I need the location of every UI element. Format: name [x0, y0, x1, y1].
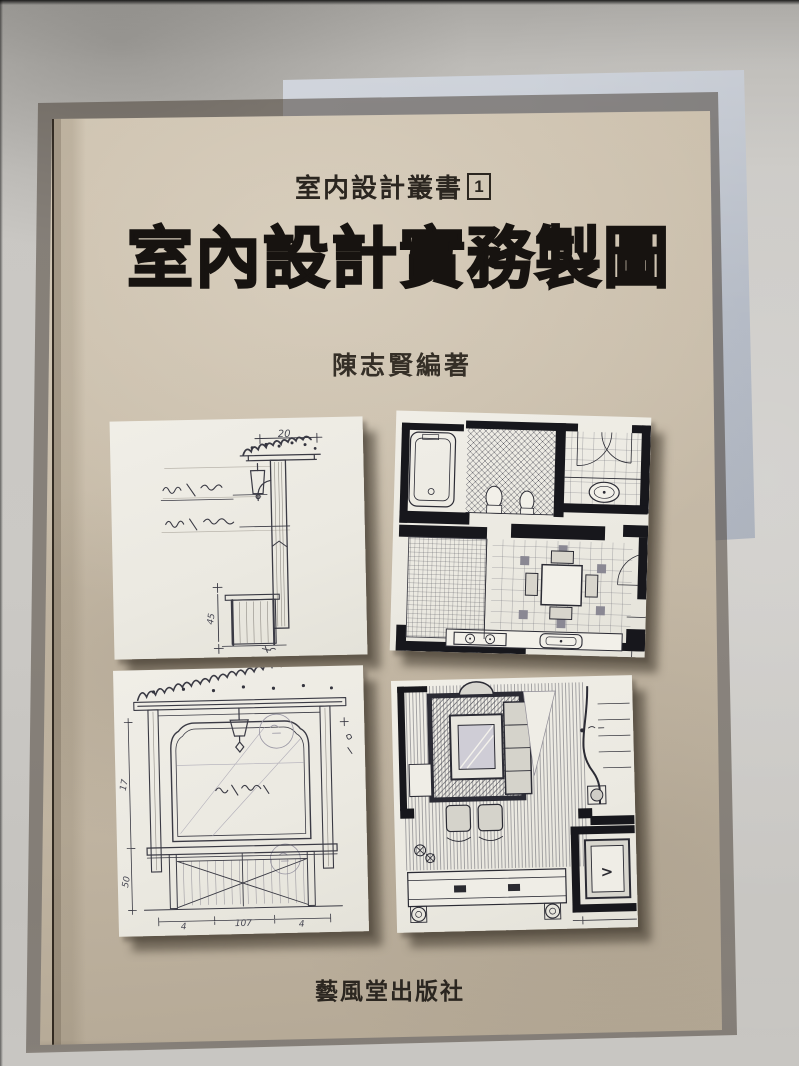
sketch-panel-floor-plan-living: >	[391, 675, 638, 933]
photo-top-edge	[0, 0, 799, 5]
dimension-right-scribble	[340, 717, 352, 753]
washroom	[564, 431, 642, 505]
toilet-area	[466, 428, 556, 514]
accent-tiles	[518, 544, 606, 629]
series-number-box: 1	[467, 173, 491, 200]
detail-callouts	[259, 714, 301, 875]
dimension-left: 45	[205, 583, 223, 653]
top-chair	[459, 681, 493, 695]
sketch-panel-elevation-alcove: 17 50 4 107 4	[113, 665, 369, 937]
pendant-lamp	[230, 708, 249, 752]
svg-text:20: 20	[278, 429, 291, 440]
annotation-post	[166, 517, 290, 531]
sofa	[503, 691, 557, 794]
dining-chairs	[525, 550, 599, 620]
plan-misc-lines	[484, 539, 648, 657]
kitchen-counter	[446, 629, 622, 651]
dining-room	[490, 539, 638, 633]
svg-text:45: 45	[206, 612, 218, 625]
foliage-top	[137, 665, 333, 700]
book-title: 室內設計實務製圖	[127, 205, 671, 301]
svg-text:50: 50	[121, 875, 133, 888]
corner-scribble	[262, 646, 275, 652]
floor-plan-living-drawing: >	[391, 675, 638, 933]
bathtub	[409, 432, 456, 507]
series-title: 室内設計叢書1	[295, 168, 491, 205]
dimension-left: 17 50	[117, 718, 136, 914]
handwritten-label	[216, 784, 269, 795]
post	[270, 460, 289, 628]
svg-text:107: 107	[235, 919, 253, 929]
balcony-grid	[406, 537, 487, 639]
direction-mark: >	[600, 863, 613, 881]
cornice	[134, 698, 346, 711]
elevation-alcove-drawing: 17 50 4 107 4	[113, 665, 369, 937]
floor-hatching	[401, 682, 587, 870]
series-label: 室内設計叢書	[295, 168, 463, 205]
arched-mirror-frame	[170, 720, 311, 841]
bottom-chairs	[446, 804, 503, 841]
annotation-lamp	[161, 482, 267, 500]
guide-lines	[161, 466, 290, 533]
svg-text:4: 4	[181, 922, 187, 932]
dimension-bottom: 4 107 4	[159, 914, 331, 933]
left-side-table-plant	[409, 764, 435, 863]
curved-partition	[579, 685, 632, 804]
side-room: >	[571, 839, 637, 925]
book-front-cover: 室内設計叢書1 室內設計實務製圖 陳志賢編著 20	[0, 0, 799, 1066]
dining-table	[541, 565, 582, 606]
planter-foliage	[240, 436, 320, 461]
walls	[397, 681, 637, 917]
sketch-panel-elevation-post: 20	[110, 416, 368, 659]
svg-text:17: 17	[119, 778, 131, 791]
wall-lamp	[250, 463, 271, 500]
bench-rail	[143, 844, 342, 910]
side-posts	[148, 706, 334, 872]
floor-plan-bath-drawing	[390, 410, 652, 657]
publisher-line: 藝風堂出版社	[315, 972, 465, 1006]
dimension-top: 20	[255, 428, 322, 443]
carpet-and-table	[429, 694, 524, 800]
elevation-post-drawing: 20	[110, 416, 368, 659]
author-line: 陳志賢編著	[332, 346, 472, 382]
sketch-panel-floor-plan-bath	[390, 410, 652, 657]
bench	[221, 594, 286, 646]
book-photo-scene: 室内設計叢書1 室內設計實務製圖 陳志賢編著 20	[0, 0, 799, 1066]
walls	[396, 419, 651, 658]
window-bench	[408, 869, 567, 923]
svg-text:4: 4	[299, 920, 305, 930]
photo-left-edge	[0, 0, 3, 1066]
